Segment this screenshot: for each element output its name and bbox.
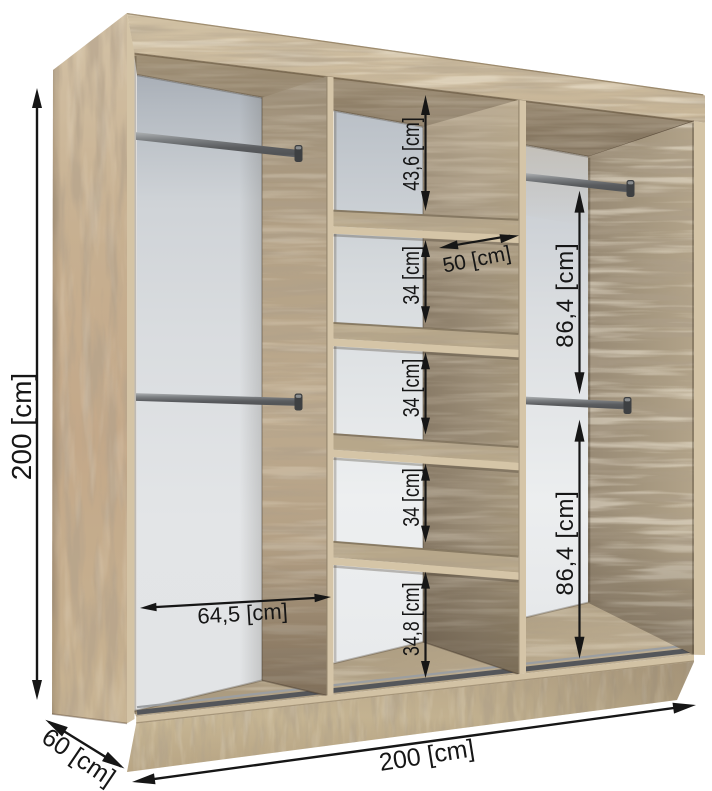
svg-text:86,4 [cm]: 86,4 [cm] xyxy=(552,490,579,595)
svg-text:43,6 [cm]: 43,6 [cm] xyxy=(399,117,425,190)
svg-text:86,4 [cm]: 86,4 [cm] xyxy=(552,243,579,348)
svg-text:34 [cm]: 34 [cm] xyxy=(399,468,425,527)
svg-text:34,8 [cm]: 34,8 [cm] xyxy=(399,583,425,656)
svg-text:34 [cm]: 34 [cm] xyxy=(399,359,425,418)
svg-text:200 [cm]: 200 [cm] xyxy=(6,373,37,480)
svg-text:34 [cm]: 34 [cm] xyxy=(399,246,425,305)
